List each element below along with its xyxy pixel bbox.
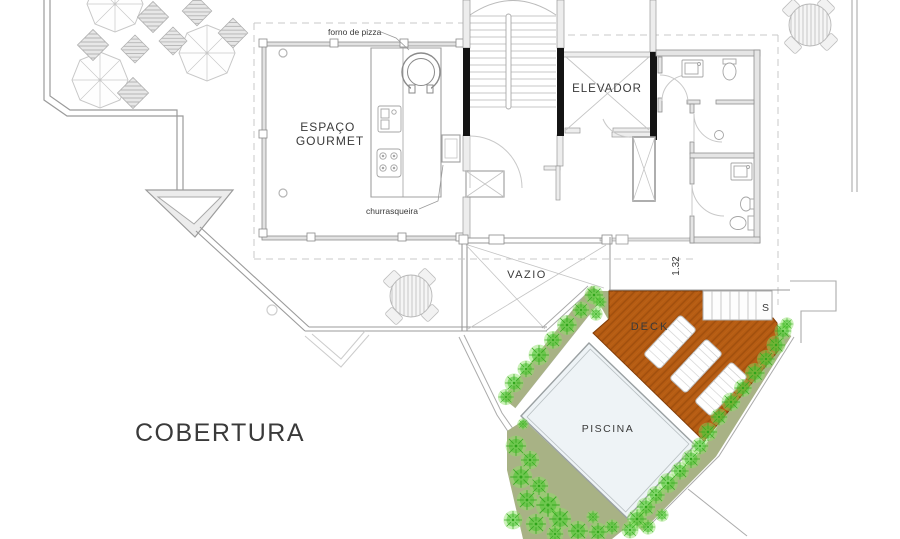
label-vazio: VAZIO: [507, 269, 547, 281]
sink-top-bath: [682, 60, 703, 77]
label-elevador: ELEVADOR: [572, 83, 642, 95]
corridor-walls: [600, 235, 690, 244]
label-forno-de-pizza: forno de pizza: [328, 27, 382, 37]
lower-level-bay-outline: [305, 331, 369, 367]
cooktop: [377, 149, 401, 177]
bidet: [741, 197, 755, 211]
label-espaco-gourmet: ESPAÇO GOURMET: [296, 120, 364, 148]
void-area: [459, 235, 612, 331]
main-staircase: [470, 1, 556, 110]
label-stair-direction: S: [762, 302, 769, 314]
label-piscina: PISCINA: [582, 423, 635, 435]
sink-bottom-bath: [731, 163, 752, 180]
toilet-bottom-bath: [730, 216, 754, 230]
floor-plan-drawing: ESPAÇO GOURMET ELEVADOR VAZIO DECK PISCI…: [0, 0, 900, 539]
plan-title: COBERTURA: [135, 419, 305, 447]
duct-shaft-left: [466, 171, 504, 197]
neighbour-outline: [790, 0, 857, 343]
structural-columns: [267, 49, 287, 315]
toilet-top-bath: [723, 59, 736, 80]
shower-drain: [715, 131, 724, 140]
stair-handrail: [506, 14, 511, 109]
label-churrasqueira: churrasqueira: [366, 206, 418, 216]
bathroom-walls: [656, 50, 760, 243]
kitchen-sink: [378, 106, 401, 132]
label-deck: DECK: [631, 321, 670, 333]
label-void-dimension: 1.32: [671, 256, 682, 276]
duct-shaft-right: [633, 137, 655, 201]
triangle-planter: [146, 190, 233, 237]
floor-plan-cobertura: ESPAÇO GOURMET ELEVADOR VAZIO DECK PISCI…: [0, 0, 900, 539]
